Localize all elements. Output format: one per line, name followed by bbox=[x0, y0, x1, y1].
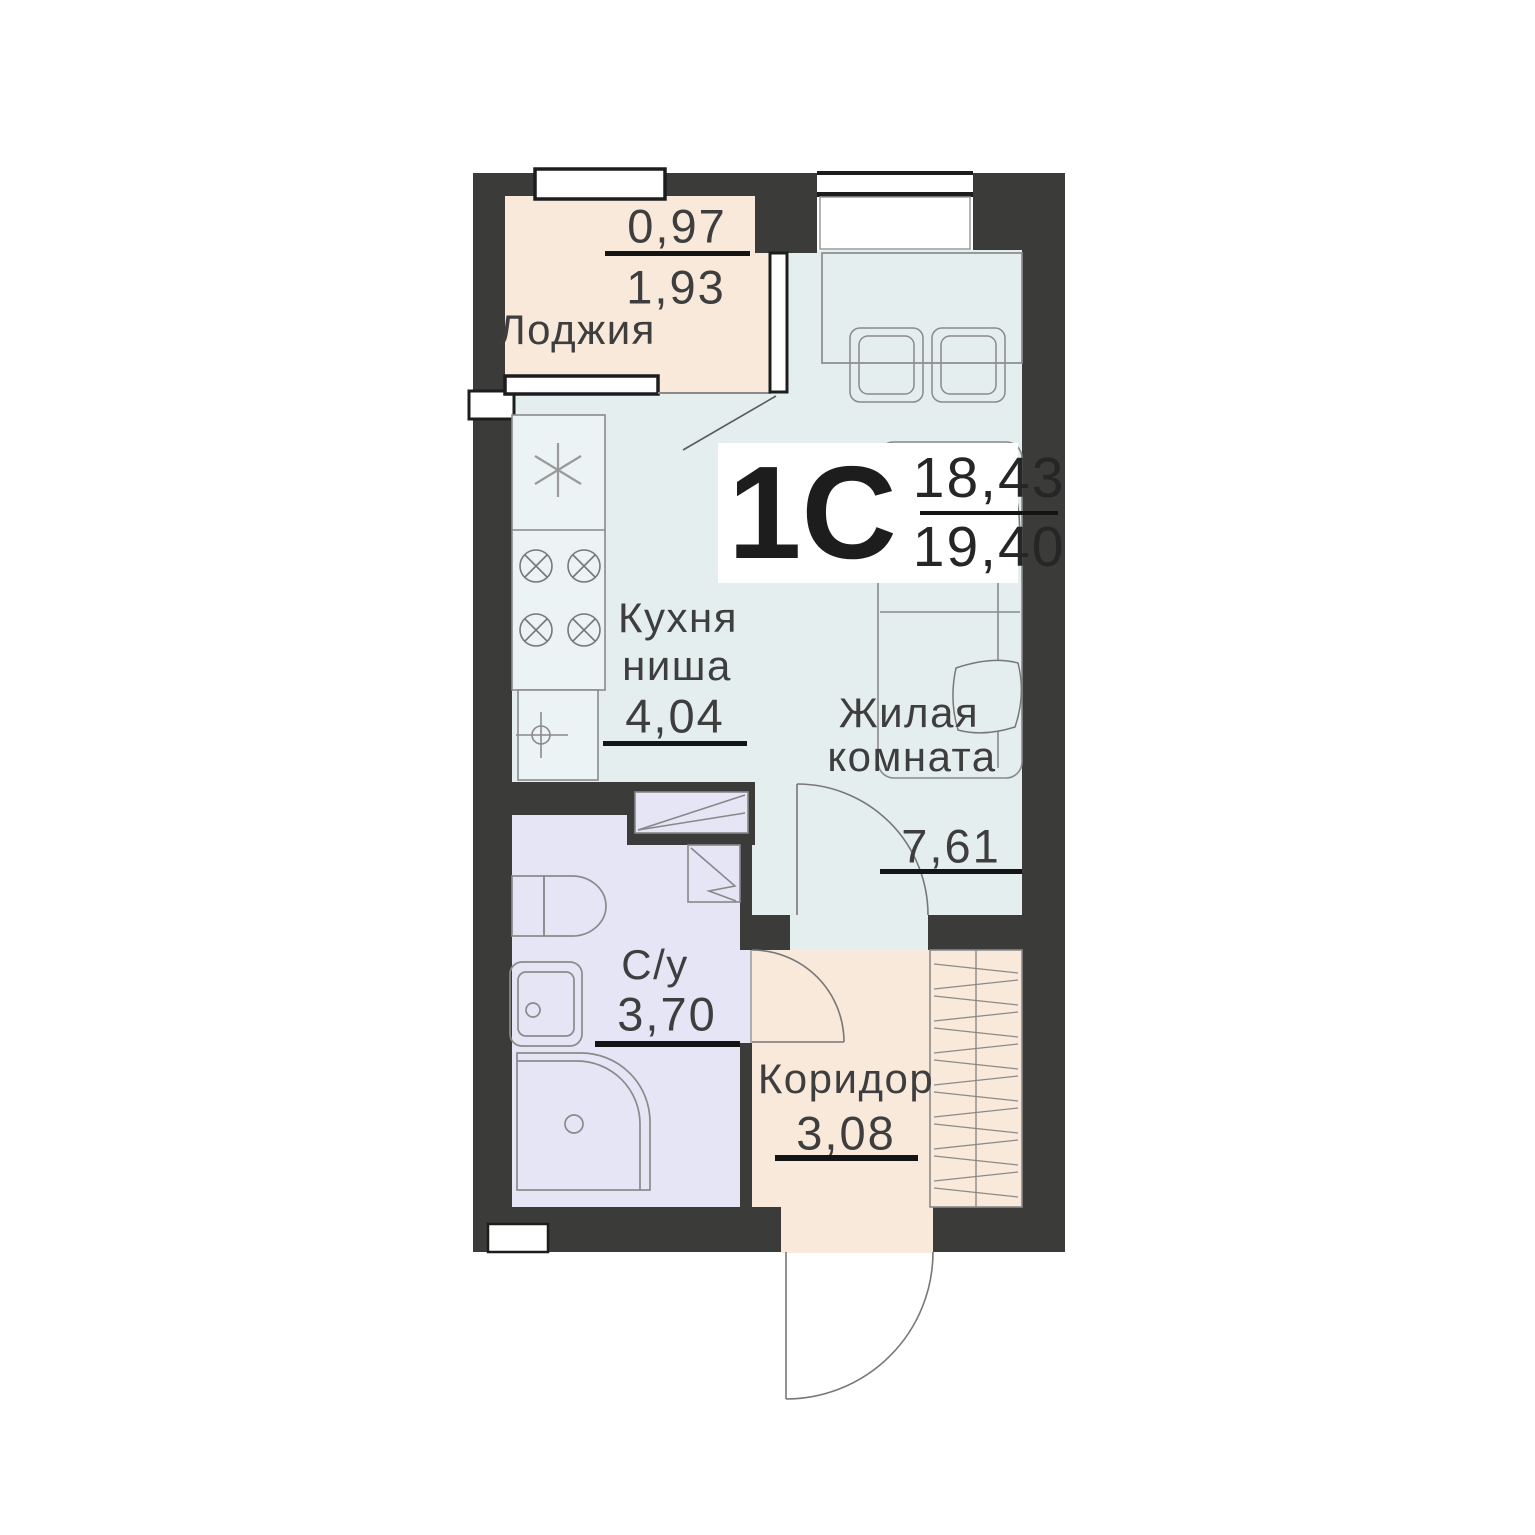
wall-living-corridor-right bbox=[928, 915, 1022, 950]
living-area-underline bbox=[880, 869, 1022, 874]
unit-info-card: 1С 18,43 19,40 bbox=[718, 443, 1018, 583]
room-area-kitchen: 4,04 bbox=[625, 693, 724, 740]
unit-area-fraction: 18,43 19,40 bbox=[913, 450, 1066, 576]
wall-left bbox=[473, 419, 512, 1252]
floor-plan-drawing bbox=[0, 0, 1535, 1535]
room-area-corridor: 3,08 bbox=[796, 1110, 895, 1157]
entry-door-icon bbox=[786, 1252, 933, 1399]
wall-pier bbox=[755, 173, 817, 253]
corridor-area-underline bbox=[775, 1155, 918, 1161]
room-label-bathroom: С/у bbox=[621, 944, 689, 986]
bathroom-area-underline bbox=[595, 1041, 740, 1047]
wall-bathroom-corridor-lower bbox=[740, 1043, 752, 1207]
room-label-kitchen-line2: ниша bbox=[622, 645, 732, 687]
wardrobe-icon bbox=[930, 950, 1022, 1207]
wall-living-corridor-left bbox=[752, 915, 790, 950]
kitchen-sink-icon bbox=[516, 690, 598, 780]
wall-bathroom-corridor-upper bbox=[740, 845, 752, 950]
wall-right bbox=[1022, 173, 1065, 1252]
room-area-living: 7,61 bbox=[901, 823, 1000, 870]
room-area-loggia-upper: 0,97 bbox=[627, 203, 726, 250]
room-label-corridor: Коридор bbox=[758, 1058, 934, 1100]
room-area-loggia-lower: 1,93 bbox=[626, 264, 725, 311]
unit-living-area: 18,43 bbox=[913, 450, 1066, 507]
room-label-living-line2: комната bbox=[827, 736, 996, 778]
unit-total-area: 19,40 bbox=[913, 519, 1066, 576]
loggia-fraction-line bbox=[605, 251, 750, 256]
kitchen-area-underline bbox=[603, 741, 747, 746]
wall-bottom-right bbox=[933, 1207, 1065, 1252]
unit-type-label: 1С bbox=[728, 447, 897, 579]
loggia-inner-window-icon bbox=[505, 376, 658, 394]
balcony-door-leaf bbox=[770, 253, 787, 392]
entry-threshold bbox=[781, 1207, 933, 1253]
wall-left-loggia bbox=[473, 173, 505, 392]
room-label-loggia: Лоджия bbox=[498, 309, 656, 351]
loggia-window-icon bbox=[535, 169, 665, 199]
living-window-icon bbox=[817, 171, 973, 250]
floor-plan: Лоджия 0,97 1,93 Кухня ниша 4,04 Жилая к… bbox=[0, 0, 1535, 1535]
bottom-wall-gap bbox=[488, 1224, 548, 1252]
room-label-kitchen-line1: Кухня bbox=[618, 597, 738, 639]
room-label-living-line1: Жилая bbox=[839, 692, 979, 734]
room-area-bathroom: 3,70 bbox=[617, 991, 716, 1038]
